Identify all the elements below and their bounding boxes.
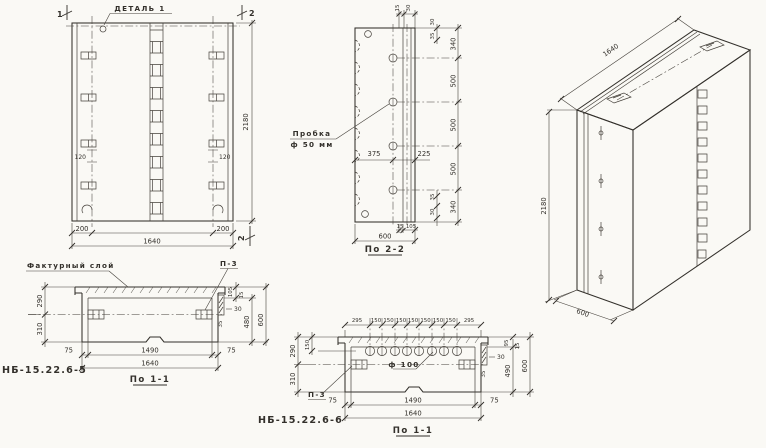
dim-mid-left-150: 150: [305, 339, 311, 350]
iso-left-face: [577, 110, 633, 310]
plan-view-nb-15-22-6-5: Фактурный слой П-3 290 310 105 15 30 35 …: [2, 259, 269, 385]
dim-hole-from-left: 375: [368, 150, 381, 158]
loop-recess-top-icon: [365, 31, 372, 38]
dim-hole-from-right: 225: [418, 150, 431, 158]
dim-mid-35: 35: [481, 371, 487, 378]
dim-seg-500-2: 500: [450, 119, 458, 132]
dim-plan-left-290: 290: [36, 295, 44, 308]
plan-cavity-lines-mid: [351, 347, 475, 392]
dim-top-150: 150: [445, 318, 456, 324]
lifting-recess-left: [607, 93, 631, 103]
section-outline: [355, 28, 415, 222]
iso-anchor-marks: [599, 126, 603, 284]
panel-mark-mid: НБ-15.22.6-6: [258, 415, 343, 426]
dim-plan-left-310: 310: [36, 323, 44, 336]
dim-top-30: 30: [406, 4, 412, 11]
end-rib-detail: [218, 295, 224, 315]
p3-callout-left: П-3: [220, 259, 238, 268]
plan-mid-caption: По 1-1: [393, 426, 434, 436]
dim-top-150: 150: [396, 318, 407, 324]
dim-plan-75-left: 75: [64, 347, 73, 355]
blueprint-sheet: ДЕТАЛЬ 1 1 2 2 120 120 2180 200 200 1640: [0, 0, 766, 448]
dim-bottom-105: 105: [406, 224, 416, 230]
dim-section-width: 600: [379, 233, 392, 241]
anchor-slots-left: [81, 52, 96, 189]
dim-plan-30: 30: [234, 306, 242, 313]
section-flag-1-mark: [62, 5, 72, 20]
dim-slot-right: 120: [219, 154, 231, 161]
anchor-slots-right: [209, 52, 224, 189]
detail-callout-label: ДЕТАЛЬ 1: [114, 4, 165, 13]
plan-body-outline: [82, 295, 218, 342]
dim-iso-length: 1640: [601, 42, 620, 58]
lifting-loop-detail: [100, 26, 106, 32]
p3-callout-mid: П-3: [308, 390, 326, 399]
plug-label-line1: Пробка: [293, 129, 332, 138]
hole-dia-label: ф 100: [388, 360, 419, 369]
facing-strip-outline-mid: [338, 337, 488, 345]
dim-mid-75-left: 75: [328, 397, 337, 405]
section-flag-2-top-mark: [237, 5, 247, 20]
dim-plan-15: 15: [239, 292, 245, 299]
hole-row: [365, 318, 461, 358]
plan-cavity-lines: [88, 298, 212, 342]
dim-plan-1640: 1640: [141, 360, 158, 368]
dim-top-150: 150: [371, 318, 382, 324]
iso-length-dim: [560, 18, 694, 110]
dim-seg-500-3: 500: [450, 163, 458, 176]
section-2-2-view: Пробка ф 50 мм 15 30 375 225 30 35 35 30…: [290, 4, 462, 255]
dim-slot-left: 120: [75, 154, 87, 161]
iso-height-dim: [545, 110, 577, 302]
front-elevation-view: ДЕТАЛЬ 1 1 2 2 120 120 2180 200 200 1640: [57, 4, 256, 249]
dim-front-height: 2180: [242, 113, 250, 130]
dim-mid-1490: 1490: [404, 397, 421, 405]
isometric-view: 1640 2180 600: [540, 16, 750, 324]
plan-mid-top-dim-line: [345, 325, 481, 337]
dim-mid-left-310: 310: [289, 373, 297, 386]
section-flag-2-bottom: 2: [237, 235, 246, 241]
dim-mid-30: 30: [497, 354, 505, 361]
dim-top-295-l: 295: [352, 318, 362, 324]
section-flag-2-top: 2: [249, 9, 255, 18]
facing-layer-leader: [26, 271, 128, 287]
dim-iso-height: 2180: [540, 197, 548, 214]
section-caption: По 2-2: [365, 245, 406, 255]
dim-mid-cavity-490: 490: [504, 365, 512, 378]
center-lines: [66, 16, 240, 227]
facing-layer-label: Фактурный слой: [27, 261, 115, 270]
dim-top-15: 15: [395, 5, 401, 12]
dim-iso-depth: 600: [575, 307, 590, 319]
end-rib-detail-mid: [481, 345, 487, 365]
dim-plan-105: 105: [228, 287, 234, 297]
panel-drawing: ДЕТАЛЬ 1 1 2 2 120 120 2180 200 200 1640: [0, 0, 766, 448]
dim-mid-1640: 1640: [404, 410, 421, 418]
dim-mid-15: 15: [515, 343, 521, 350]
dim-bottom-15: 15: [397, 224, 404, 230]
dim-top-150: 150: [433, 318, 444, 324]
dim-inner-top-30: 30: [430, 18, 436, 25]
dim-seg-340-top: 340: [450, 38, 458, 51]
dim-inner-bottom-35: 35: [430, 194, 436, 201]
plug-label-line2: ф 50 мм: [291, 140, 334, 149]
dim-inner-bottom-30: 30: [430, 208, 436, 215]
dim-plan-75-right: 75: [227, 347, 236, 355]
dim-mid-depth-600: 600: [521, 360, 529, 373]
dim-inner-top-35: 35: [430, 33, 436, 40]
dim-top-150: 150: [408, 318, 419, 324]
section-flag-2-bottom-mark: [245, 226, 255, 246]
dim-mid-75-right: 75: [490, 397, 499, 405]
iso-facing-layer-side: [584, 113, 588, 295]
iso-facing-layer-top: [580, 32, 700, 114]
dim-mid-left-290: 290: [289, 345, 297, 358]
facing-strip-outline: [75, 287, 225, 295]
dim-seg-340-bottom: 340: [450, 201, 458, 214]
dim-mid-95: 95: [504, 340, 510, 347]
dim-plan-depth-600: 600: [257, 314, 265, 327]
plan-left-caption: По 1-1: [130, 375, 171, 385]
dim-top-150: 150: [420, 318, 431, 324]
dim-plan-35: 35: [218, 321, 224, 328]
dim-plan-1490: 1490: [141, 347, 158, 355]
keyed-joint-keys: [153, 42, 161, 215]
dim-seg-500-1: 500: [450, 75, 458, 88]
keyed-joint-rungs: [150, 30, 163, 214]
keyed-edge-profile: [355, 40, 360, 206]
plan-view-nb-15-22-6-6: 295 150 150 150 150 150 150 150 295 ф 10…: [258, 318, 534, 436]
dim-top-295-r: 295: [464, 318, 474, 324]
dim-edge-left: 200: [76, 225, 89, 233]
facing-strip-hatch-mid: [349, 337, 479, 343]
iso-front-face: [633, 50, 750, 310]
section-flag-1: 1: [57, 10, 63, 19]
dim-edge-right: 200: [217, 225, 230, 233]
dim-front-width: 1640: [143, 238, 160, 246]
panel-mark-left: НБ-15.22.6-5: [2, 365, 87, 376]
dim-plan-cavity-480: 480: [243, 316, 251, 329]
lifting-recess-right: [700, 41, 724, 51]
facing-strip-hatch: [86, 287, 216, 293]
corner-hook-left: [82, 205, 92, 213]
corner-hook-right: [213, 205, 223, 213]
dim-top-150: 150: [383, 318, 394, 324]
iso-keyed-joint: [698, 90, 707, 258]
loop-recess-bottom-icon: [362, 211, 369, 218]
